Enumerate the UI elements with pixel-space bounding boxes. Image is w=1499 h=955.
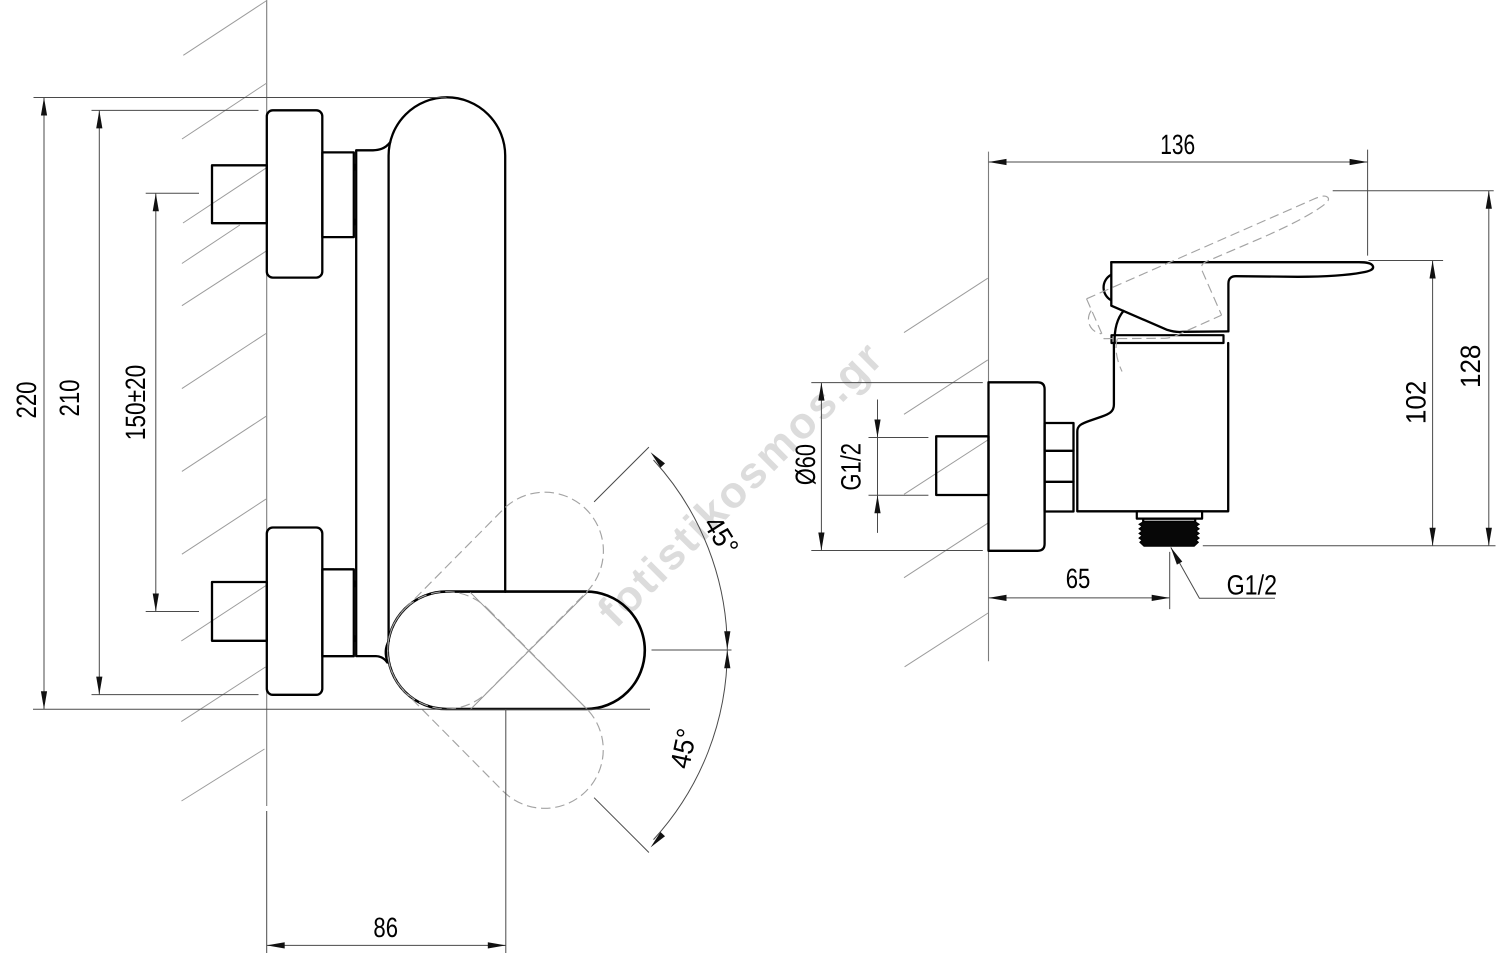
svg-text:G1/2: G1/2	[835, 443, 866, 491]
svg-text:210: 210	[54, 380, 85, 417]
svg-text:65: 65	[1066, 563, 1091, 594]
svg-text:102: 102	[1400, 381, 1431, 424]
svg-text:128: 128	[1455, 345, 1486, 388]
svg-text:136: 136	[1160, 129, 1195, 160]
svg-text:220: 220	[11, 382, 42, 419]
svg-text:Ø60: Ø60	[790, 444, 821, 485]
svg-text:150±20: 150±20	[120, 365, 151, 440]
svg-text:G1/2: G1/2	[1227, 570, 1277, 601]
svg-text:86: 86	[373, 912, 398, 943]
